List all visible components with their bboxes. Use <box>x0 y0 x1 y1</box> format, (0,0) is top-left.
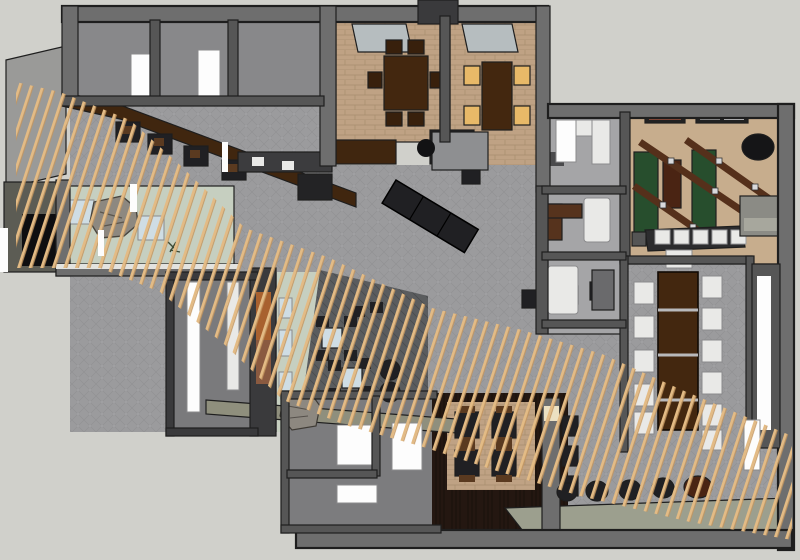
ribbed-box <box>632 232 646 246</box>
dining-chair <box>408 40 424 54</box>
lit-chair <box>464 66 480 85</box>
restroom-divider <box>287 470 377 478</box>
interior-wall <box>228 20 238 102</box>
lit-post <box>222 142 228 172</box>
interior-wall <box>150 20 160 102</box>
floorplan-render <box>0 0 800 560</box>
back-of-house-rooms-floor <box>70 20 324 100</box>
lit-post <box>98 230 104 256</box>
bar-stools <box>655 230 746 244</box>
dining-table <box>384 56 428 110</box>
door-opening <box>198 50 220 96</box>
credenza <box>336 140 396 164</box>
dining-chair <box>386 112 402 126</box>
roof-vent <box>418 0 458 24</box>
west-wall-upper <box>62 6 78 104</box>
lit-chair <box>514 66 530 85</box>
north-east-wall <box>548 104 794 118</box>
lit-chair <box>514 106 530 125</box>
interior-wall <box>536 6 550 192</box>
restroom-fixture <box>337 485 377 503</box>
kitchen-hood <box>298 174 332 200</box>
lit-post <box>130 184 137 212</box>
round-planter <box>417 139 435 157</box>
skylight <box>352 24 412 52</box>
lit-chair <box>464 106 480 125</box>
kitchen-equipment <box>252 157 264 166</box>
corridor-door <box>556 120 576 162</box>
dining-chair <box>408 112 424 126</box>
art-room-wall <box>166 428 258 436</box>
entry-side-light <box>0 228 8 272</box>
daybed <box>548 266 578 314</box>
dining-table <box>482 62 512 130</box>
restroom-wall <box>281 525 441 533</box>
counter <box>592 120 610 164</box>
interior-wall <box>62 96 324 106</box>
window-band <box>757 276 771 430</box>
skylight <box>462 24 518 52</box>
office-divider <box>542 186 626 194</box>
black-drum <box>742 134 774 160</box>
interior-wall <box>320 6 336 166</box>
desk-return <box>546 204 582 218</box>
side-table <box>462 170 480 184</box>
dining-chair <box>368 72 382 88</box>
dining-divider-wall <box>440 16 450 142</box>
interior-wall <box>620 256 752 264</box>
closet <box>592 270 614 310</box>
restroom-wall <box>281 391 289 533</box>
kitchen-equipment <box>282 161 294 170</box>
cafe-table-cluster <box>184 146 208 166</box>
office-divider <box>542 320 626 328</box>
daybed <box>584 198 610 242</box>
office-divider <box>542 252 626 260</box>
north-wall <box>62 6 548 22</box>
dining-chair <box>386 40 402 54</box>
